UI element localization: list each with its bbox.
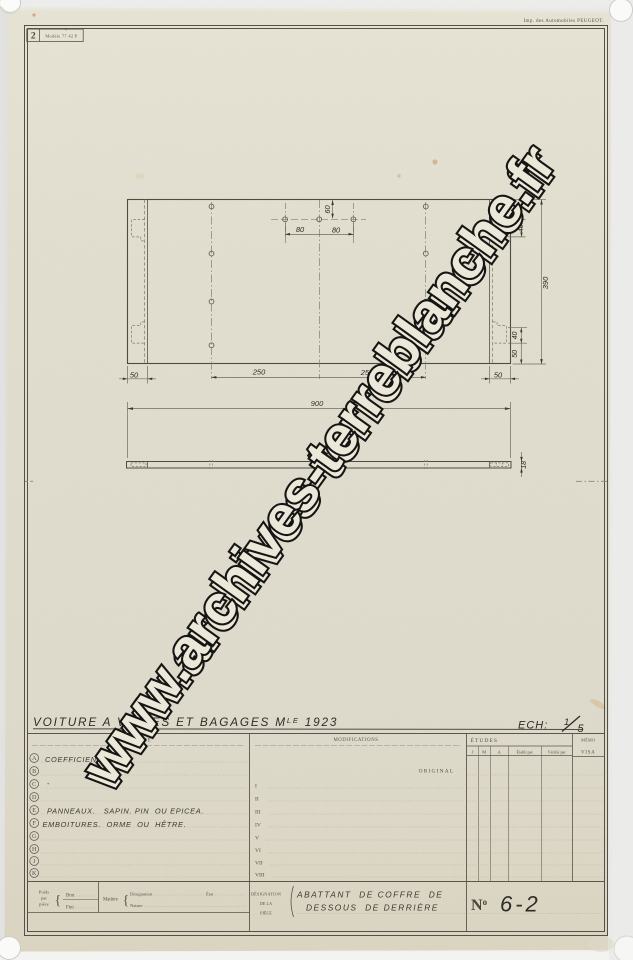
svg-text:390: 390: [541, 276, 550, 289]
svg-text:H: H: [32, 846, 37, 853]
svg-text:B: B: [32, 768, 36, 775]
svg-text:2: 2: [31, 32, 36, 42]
svg-text:IV: IV: [255, 823, 261, 829]
svg-text:40: 40: [512, 332, 519, 340]
svg-text:80: 80: [296, 225, 305, 234]
svg-text:II: II: [255, 797, 259, 803]
svg-text:D: D: [32, 794, 37, 801]
svg-text:{: {: [123, 894, 130, 909]
svg-text:Vérifié par: Vérifié par: [548, 749, 567, 754]
svg-text:III: III: [255, 810, 261, 816]
svg-text:K: K: [32, 870, 37, 877]
svg-text:18: 18: [521, 461, 528, 469]
svg-text:6-2: 6-2: [500, 892, 541, 917]
svg-text:80: 80: [332, 226, 341, 235]
svg-text:MÉMO: MÉMO: [581, 738, 595, 743]
svg-text:VIII: VIII: [255, 873, 265, 879]
svg-text:C: C: [32, 781, 36, 788]
svg-text:EMBOITURES. ORME OU HÊTRE.: EMBOITURES. ORME OU HÊTRE.: [43, 820, 187, 829]
svg-text:PIÈCE: PIÈCE: [260, 911, 272, 916]
svg-text:50: 50: [130, 370, 139, 379]
svg-text:Nature: Nature: [130, 903, 143, 908]
svg-text:F: F: [32, 820, 36, 827]
svg-text:ORIGINAL: ORIGINAL: [419, 769, 455, 775]
svg-text:DE LA: DE LA: [260, 901, 272, 906]
svg-text:par: par: [41, 896, 47, 901]
svg-text:Imp. des Automobiles PEUGEOT.: Imp. des Automobiles PEUGEOT.: [523, 19, 604, 24]
svg-text:M: M: [482, 749, 486, 754]
svg-text:Poids: Poids: [39, 890, 49, 895]
svg-text:ÉTUDES: ÉTUDES: [471, 736, 498, 744]
svg-text:État: État: [206, 892, 214, 897]
svg-text:60: 60: [323, 205, 332, 214]
svg-text:E: E: [32, 807, 36, 814]
svg-text:VISA: VISA: [581, 751, 595, 756]
svg-text:V: V: [255, 836, 259, 842]
svg-text:G: G: [32, 833, 37, 840]
svg-text:J: J: [472, 749, 474, 754]
svg-text:MODIFICATIONS: MODIFICATIONS: [333, 738, 378, 743]
svg-text:DÉSIGNATION: DÉSIGNATION: [251, 892, 281, 897]
svg-text:Matière: Matière: [103, 898, 118, 903]
svg-text:Fini: Fini: [66, 906, 74, 911]
svg-text:Désignation: Désignation: [130, 892, 153, 897]
svg-text:pièce: pièce: [39, 902, 49, 907]
svg-text:Établi par: Établi par: [516, 749, 533, 754]
svg-text:VII: VII: [255, 861, 263, 867]
svg-text:VI: VI: [255, 848, 261, 854]
svg-text:DESSOUS DE DERRIÈRE: DESSOUS DE DERRIÈRE: [306, 903, 439, 913]
svg-text:Modèle 77 42 P: Modèle 77 42 P: [45, 34, 77, 39]
svg-text:50: 50: [512, 350, 519, 358]
svg-text:Brut: Brut: [66, 894, 75, 899]
svg-text:50: 50: [494, 371, 503, 380]
svg-text:I: I: [255, 784, 257, 790]
svg-text:ECH:: ECH:: [518, 720, 548, 732]
svg-text:ABATTANT DE COFFRE DE: ABATTANT DE COFFRE DE: [296, 890, 443, 900]
svg-text:A: A: [32, 755, 37, 762]
svg-text:250: 250: [252, 368, 266, 377]
svg-text:{: {: [55, 894, 62, 909]
svg-text:PANNEAUX. SAPIN. PIN OU EPI: PANNEAUX. SAPIN. PIN OU EPICEA.: [47, 806, 204, 815]
